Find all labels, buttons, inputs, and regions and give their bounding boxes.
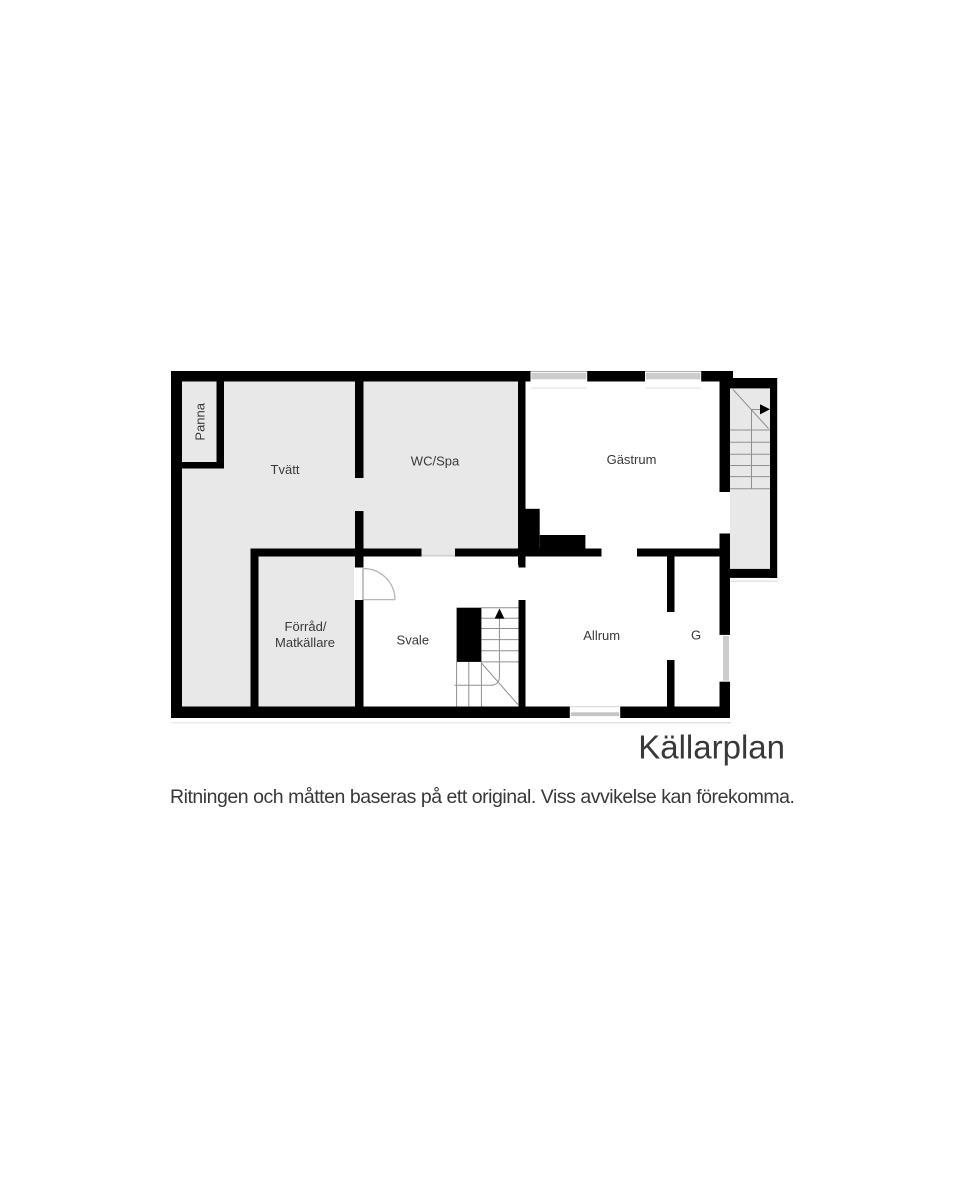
svg-text:WC/Spa: WC/Spa — [411, 454, 460, 469]
svg-text:Källarplan: Källarplan — [638, 729, 785, 766]
svg-text:Matkällare: Matkällare — [275, 635, 335, 650]
svg-text:Svale: Svale — [397, 633, 430, 648]
svg-text:Förråd/: Förråd/ — [285, 619, 327, 634]
svg-text:Gästrum: Gästrum — [607, 452, 657, 467]
svg-text:Ritningen och måtten baseras p: Ritningen och måtten baseras på ett orig… — [170, 786, 794, 808]
svg-text:Tvätt: Tvätt — [271, 462, 300, 477]
svg-text:G: G — [691, 628, 701, 643]
svg-text:Allrum: Allrum — [583, 628, 620, 643]
svg-text:Panna: Panna — [193, 402, 208, 440]
